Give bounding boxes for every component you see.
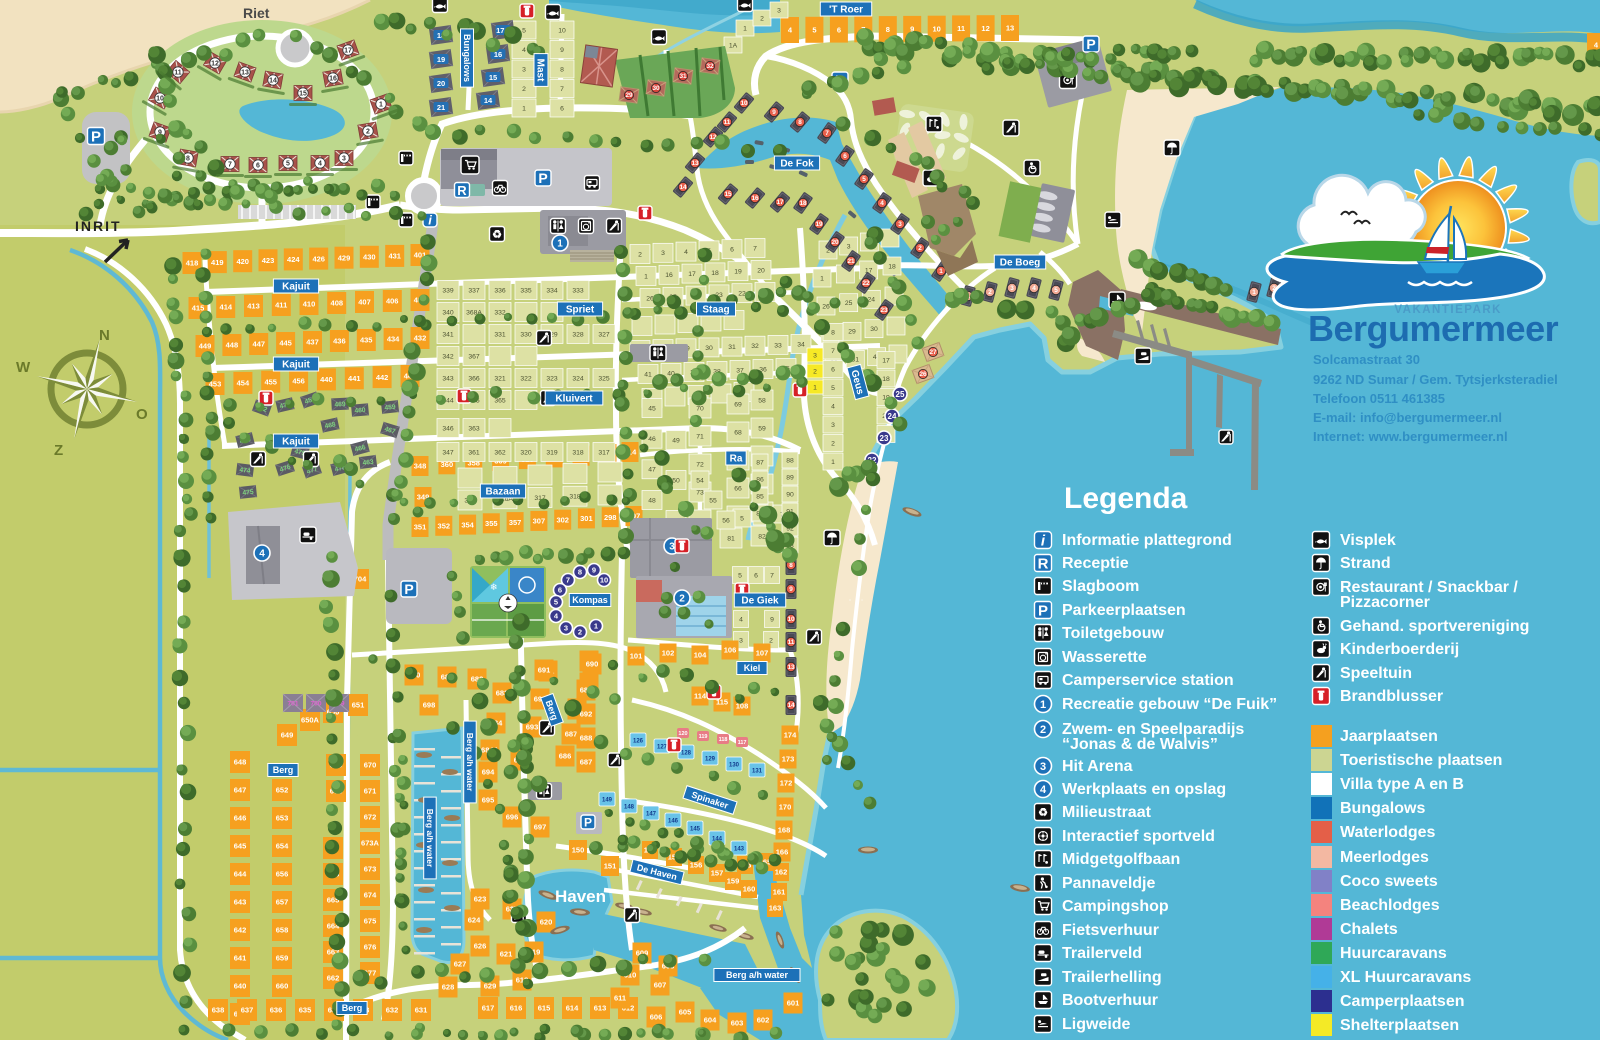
svg-text:R: R	[457, 183, 467, 198]
svg-text:1: 1	[522, 105, 526, 112]
svg-text:Berg a/h water: Berg a/h water	[726, 970, 789, 980]
svg-text:21: 21	[847, 258, 855, 265]
svg-text:660: 660	[276, 982, 289, 991]
svg-text:613: 613	[594, 1004, 607, 1013]
svg-text:317: 317	[598, 449, 610, 456]
svg-text:118: 118	[719, 737, 728, 743]
svg-text:128: 128	[681, 750, 692, 756]
svg-text:7: 7	[770, 572, 774, 579]
svg-text:1: 1	[1252, 289, 1256, 296]
svg-text:Beachlodges: Beachlodges	[1340, 897, 1440, 914]
svg-text:5: 5	[554, 598, 558, 607]
svg-text:4: 4	[880, 200, 884, 207]
svg-text:602: 602	[757, 1016, 770, 1025]
svg-text:27: 27	[929, 349, 937, 356]
svg-text:7: 7	[825, 130, 829, 137]
svg-text:107: 107	[756, 649, 769, 658]
svg-text:413: 413	[247, 302, 260, 311]
svg-text:Ra: Ra	[730, 454, 743, 465]
svg-text:11: 11	[724, 119, 731, 126]
svg-text:342: 342	[442, 353, 454, 360]
svg-text:624: 624	[468, 916, 481, 925]
svg-text:3: 3	[777, 7, 781, 14]
svg-text:31: 31	[728, 344, 736, 351]
svg-text:66: 66	[734, 485, 742, 492]
svg-text:Bungalows: Bungalows	[462, 34, 472, 82]
svg-text:23: 23	[880, 434, 889, 443]
svg-text:629: 629	[484, 982, 497, 991]
svg-text:10: 10	[558, 27, 566, 34]
svg-text:De Giek: De Giek	[741, 596, 779, 607]
svg-text:632: 632	[386, 1006, 399, 1015]
svg-text:3: 3	[831, 422, 835, 429]
svg-text:Wasserette: Wasserette	[1062, 649, 1147, 666]
svg-text:'T Roer: 'T Roer	[829, 5, 863, 16]
svg-text:627: 627	[454, 960, 467, 969]
svg-text:2: 2	[578, 628, 582, 637]
svg-text:130: 130	[729, 762, 740, 768]
svg-text:604: 604	[704, 1016, 717, 1025]
svg-text:631: 631	[415, 1006, 428, 1015]
svg-text:161: 161	[773, 888, 786, 897]
svg-text:8: 8	[798, 119, 802, 126]
svg-text:620: 620	[540, 918, 553, 927]
svg-text:Speeltuin: Speeltuin	[1340, 665, 1412, 682]
svg-text:170: 170	[779, 803, 792, 812]
svg-text:3: 3	[522, 66, 526, 73]
svg-text:701: 701	[287, 701, 298, 708]
svg-text:366: 366	[468, 375, 480, 382]
svg-text:32: 32	[706, 63, 714, 70]
svg-text:321: 321	[494, 375, 506, 382]
svg-text:69: 69	[734, 401, 742, 408]
svg-text:Chalets: Chalets	[1340, 921, 1398, 938]
svg-text:339: 339	[442, 287, 454, 294]
svg-text:56: 56	[722, 517, 730, 524]
svg-text:13: 13	[241, 69, 249, 76]
svg-text:603: 603	[731, 1019, 744, 1028]
svg-text:687: 687	[565, 730, 578, 739]
svg-text:607: 607	[654, 981, 667, 990]
svg-text:6: 6	[730, 247, 734, 254]
svg-text:120: 120	[678, 731, 687, 737]
svg-text:3: 3	[1010, 285, 1014, 292]
svg-text:10: 10	[787, 616, 795, 623]
svg-text:23: 23	[880, 307, 888, 314]
svg-text:8: 8	[578, 568, 582, 577]
svg-text:Bergumermeer: Bergumermeer	[1308, 308, 1559, 349]
svg-text:318: 318	[569, 494, 581, 501]
svg-text:Berg: Berg	[342, 1003, 363, 1013]
svg-text:168: 168	[778, 826, 791, 835]
svg-text:30: 30	[705, 345, 713, 352]
svg-text:18: 18	[882, 376, 890, 383]
svg-text:131: 131	[752, 768, 763, 774]
svg-text:441: 441	[348, 374, 361, 383]
svg-text:46: 46	[648, 436, 656, 443]
svg-text:696: 696	[506, 813, 519, 822]
svg-text:411: 411	[275, 301, 287, 310]
svg-text:Receptie: Receptie	[1062, 555, 1129, 572]
svg-text:693: 693	[526, 723, 539, 732]
svg-text:147: 147	[646, 811, 657, 817]
svg-text:O: O	[136, 406, 148, 423]
svg-text:Huurcaravans: Huurcaravans	[1340, 945, 1447, 962]
svg-text:6: 6	[558, 586, 562, 595]
svg-text:Berg: Berg	[273, 765, 294, 775]
svg-text:414: 414	[220, 303, 233, 312]
svg-text:426: 426	[312, 254, 325, 263]
svg-text:671: 671	[364, 787, 377, 796]
svg-text:5: 5	[738, 572, 742, 579]
svg-text:Kajuit: Kajuit	[282, 437, 310, 448]
svg-text:13: 13	[1006, 24, 1014, 33]
svg-text:174: 174	[784, 731, 797, 740]
svg-text:13: 13	[787, 664, 795, 671]
svg-text:323: 323	[546, 375, 558, 382]
svg-text:5: 5	[862, 176, 866, 183]
svg-text:73: 73	[696, 489, 704, 496]
svg-text:N: N	[99, 327, 110, 344]
svg-text:331: 331	[494, 331, 506, 338]
svg-text:Staag: Staag	[702, 305, 729, 316]
svg-text:6: 6	[837, 25, 841, 34]
svg-text:45: 45	[648, 405, 656, 412]
svg-text:Pannaveldje: Pannaveldje	[1062, 875, 1155, 892]
svg-text:343: 343	[442, 375, 454, 382]
svg-text:7: 7	[560, 86, 564, 93]
svg-text:Shelterplaatsen: Shelterplaatsen	[1340, 1017, 1459, 1034]
svg-text:151: 151	[604, 862, 617, 871]
svg-text:17: 17	[776, 199, 784, 206]
svg-text:650A: 650A	[301, 716, 320, 725]
svg-text:432: 432	[414, 334, 427, 343]
svg-text:626: 626	[474, 942, 487, 951]
svg-text:614: 614	[566, 1004, 579, 1013]
svg-text:355: 355	[485, 519, 498, 528]
svg-text:336: 336	[494, 287, 506, 294]
svg-text:143: 143	[734, 846, 745, 852]
svg-text:146: 146	[668, 818, 679, 824]
svg-text:119: 119	[699, 734, 708, 740]
svg-text:Recreatie gebouw “De Fuik”: Recreatie gebouw “De Fuik”	[1062, 696, 1277, 713]
svg-text:4: 4	[831, 403, 835, 410]
svg-text:18: 18	[799, 200, 807, 207]
svg-text:12: 12	[981, 24, 989, 33]
svg-text:5: 5	[831, 385, 835, 392]
svg-text:1: 1	[557, 239, 563, 250]
svg-text:68: 68	[734, 429, 742, 436]
svg-text:637: 637	[241, 1006, 254, 1015]
svg-text:298: 298	[604, 513, 617, 522]
svg-text:1: 1	[644, 273, 648, 280]
svg-text:14: 14	[679, 184, 687, 191]
svg-text:367: 367	[468, 353, 480, 360]
svg-text:1: 1	[1040, 699, 1046, 711]
svg-text:4: 4	[684, 249, 688, 256]
svg-text:646: 646	[234, 814, 247, 823]
svg-text:641: 641	[234, 954, 247, 963]
svg-text:431: 431	[388, 252, 401, 261]
svg-text:Trailerhelling: Trailerhelling	[1062, 969, 1162, 986]
svg-text:10: 10	[933, 24, 941, 33]
svg-text:Telefoon 0511 461385: Telefoon 0511 461385	[1313, 391, 1445, 406]
svg-text:54: 54	[696, 477, 704, 484]
svg-text:163: 163	[769, 904, 782, 913]
svg-text:16: 16	[665, 272, 673, 279]
svg-text:334: 334	[546, 287, 558, 294]
svg-text:Legenda: Legenda	[1064, 482, 1188, 515]
svg-text:1: 1	[939, 268, 943, 275]
svg-text:7: 7	[566, 576, 570, 585]
svg-text:475: 475	[242, 489, 254, 497]
svg-text:406: 406	[386, 297, 399, 306]
svg-text:20: 20	[437, 79, 445, 88]
svg-text:325: 325	[598, 375, 610, 382]
svg-text:Kinderboerderij: Kinderboerderij	[1340, 641, 1459, 658]
svg-text:49: 49	[672, 437, 680, 444]
svg-text:10: 10	[156, 95, 164, 102]
svg-text:126: 126	[633, 738, 644, 744]
svg-text:643: 643	[234, 898, 247, 907]
svg-text:6: 6	[843, 153, 847, 160]
svg-text:322: 322	[520, 375, 532, 382]
svg-text:408: 408	[331, 299, 344, 308]
svg-text:19: 19	[815, 221, 823, 228]
svg-text:361: 361	[468, 449, 480, 456]
svg-text:628: 628	[442, 983, 455, 992]
svg-text:10: 10	[600, 576, 608, 585]
svg-text:3: 3	[342, 155, 346, 162]
svg-text:89: 89	[786, 474, 794, 481]
svg-text:5: 5	[1054, 287, 1058, 294]
svg-text:15: 15	[724, 191, 732, 198]
svg-text:145: 145	[690, 826, 701, 832]
svg-text:635: 635	[299, 1006, 312, 1015]
svg-text:22: 22	[862, 280, 870, 287]
svg-text:11: 11	[957, 24, 965, 33]
svg-text:672: 672	[364, 813, 377, 822]
svg-text:90: 90	[786, 491, 794, 498]
svg-text:i: i	[428, 212, 432, 227]
svg-text:Mast: Mast	[534, 59, 545, 82]
svg-text:Toiletgebouw: Toiletgebouw	[1062, 625, 1164, 642]
svg-text:623: 623	[474, 895, 487, 904]
svg-text:Villa type A en B: Villa type A en B	[1340, 776, 1464, 793]
svg-text:418: 418	[186, 259, 199, 268]
svg-text:9: 9	[560, 47, 564, 54]
svg-text:71: 71	[696, 433, 704, 440]
svg-text:Midgetgolfbaan: Midgetgolfbaan	[1062, 851, 1180, 868]
svg-text:638: 638	[212, 1006, 225, 1015]
svg-text:W: W	[16, 359, 31, 376]
svg-text:424: 424	[287, 255, 300, 264]
svg-text:606: 606	[650, 1013, 663, 1022]
svg-text:456: 456	[292, 376, 305, 385]
svg-text:436: 436	[333, 337, 346, 346]
svg-text:30: 30	[870, 326, 878, 333]
svg-text:2: 2	[918, 245, 922, 252]
svg-text:5: 5	[812, 26, 816, 35]
svg-text:14: 14	[484, 96, 493, 105]
svg-text:Fietsverhuur: Fietsverhuur	[1062, 922, 1159, 939]
svg-text:148: 148	[624, 804, 635, 810]
svg-text:156: 156	[690, 861, 703, 870]
svg-text:8: 8	[886, 25, 890, 34]
svg-text:9: 9	[789, 586, 793, 593]
svg-text:302: 302	[556, 515, 569, 524]
svg-text:691: 691	[538, 666, 551, 675]
svg-text:4: 4	[739, 616, 743, 623]
svg-text:21: 21	[437, 103, 445, 112]
svg-text:31: 31	[679, 73, 687, 80]
svg-text:25: 25	[845, 300, 853, 307]
svg-text:26: 26	[822, 303, 830, 310]
svg-text:675: 675	[364, 917, 377, 926]
svg-text:82: 82	[758, 533, 766, 540]
svg-text:654: 654	[276, 842, 289, 851]
svg-text:307: 307	[533, 517, 546, 526]
svg-text:318: 318	[572, 449, 584, 456]
svg-text:440: 440	[320, 375, 333, 384]
svg-text:12: 12	[211, 60, 219, 67]
svg-text:320: 320	[520, 449, 532, 456]
svg-text:Kajuit: Kajuit	[282, 360, 310, 371]
svg-text:19: 19	[437, 55, 445, 64]
svg-text:645: 645	[234, 842, 247, 851]
svg-text:129: 129	[705, 756, 716, 762]
svg-text:2: 2	[522, 86, 526, 93]
svg-text:652: 652	[276, 786, 289, 795]
svg-text:423: 423	[262, 256, 275, 265]
svg-text:658: 658	[276, 926, 289, 935]
svg-text:686: 686	[559, 752, 572, 761]
svg-text:3: 3	[1040, 761, 1046, 773]
svg-text:616: 616	[510, 1004, 523, 1013]
svg-text:Internet: www.bergumermeer.nl: Internet: www.bergumermeer.nl	[1313, 429, 1508, 444]
svg-text:34: 34	[797, 341, 805, 348]
svg-text:18: 18	[711, 270, 719, 277]
svg-text:601: 601	[787, 999, 800, 1008]
svg-text:3: 3	[661, 250, 665, 257]
svg-text:2: 2	[813, 368, 817, 375]
svg-text:332: 332	[494, 309, 506, 316]
svg-text:Kluivert: Kluivert	[555, 394, 593, 405]
svg-text:2: 2	[638, 251, 642, 258]
svg-text:621: 621	[500, 950, 513, 959]
svg-text:687: 687	[580, 758, 593, 767]
svg-text:460: 460	[354, 407, 366, 415]
svg-text:1: 1	[379, 101, 383, 108]
svg-text:117: 117	[738, 740, 747, 746]
svg-text:Riet: Riet	[243, 5, 270, 21]
svg-text:328: 328	[572, 331, 584, 338]
svg-text:Visplek: Visplek	[1340, 532, 1396, 549]
svg-text:420: 420	[236, 257, 249, 266]
svg-text:644: 644	[234, 870, 247, 879]
svg-text:3: 3	[847, 243, 851, 250]
svg-text:162: 162	[775, 868, 788, 877]
svg-text:♻: ♻	[1038, 807, 1048, 819]
svg-text:149: 149	[602, 797, 613, 803]
svg-text:448: 448	[226, 341, 239, 350]
svg-text:365: 365	[494, 397, 506, 404]
svg-text:“Jonas & de Walvis”: “Jonas & de Walvis”	[1062, 736, 1218, 753]
svg-text:Trailerveld: Trailerveld	[1062, 945, 1142, 962]
svg-text:Pizzacorner: Pizzacorner	[1340, 594, 1430, 611]
svg-text:17: 17	[344, 47, 352, 54]
svg-text:Berg a/h water: Berg a/h water	[465, 733, 475, 792]
svg-text:7: 7	[753, 245, 757, 252]
svg-text:9262 ND Sumar / Gem. Tytsjerks: 9262 ND Sumar / Gem. Tytsjerksteradiel	[1313, 372, 1558, 387]
svg-text:Waterlodges: Waterlodges	[1340, 824, 1436, 841]
svg-text:410: 410	[303, 300, 316, 309]
svg-text:662: 662	[327, 974, 340, 983]
svg-text:363: 363	[468, 425, 480, 432]
svg-text:9: 9	[772, 109, 776, 116]
svg-text:4: 4	[318, 160, 322, 167]
svg-text:18: 18	[888, 263, 896, 270]
svg-text:Camperservice station: Camperservice station	[1062, 672, 1234, 689]
svg-text:2: 2	[760, 15, 764, 22]
svg-text:8: 8	[831, 329, 835, 336]
svg-text:2: 2	[769, 637, 773, 644]
svg-text:340: 340	[442, 309, 454, 316]
svg-text:11: 11	[788, 639, 795, 646]
svg-text:435: 435	[360, 336, 373, 345]
svg-text:De Fok: De Fok	[780, 159, 814, 170]
svg-text:Meerlodges: Meerlodges	[1340, 849, 1429, 866]
svg-text:9: 9	[592, 566, 596, 575]
svg-text:Parkeerplaatsen: Parkeerplaatsen	[1062, 602, 1186, 619]
svg-text:81: 81	[727, 535, 735, 542]
svg-text:698: 698	[423, 701, 436, 710]
svg-text:32: 32	[751, 343, 759, 350]
svg-text:29: 29	[848, 329, 856, 336]
svg-text:150: 150	[572, 846, 585, 855]
svg-text:Strand: Strand	[1340, 555, 1391, 572]
svg-text:Gehand. sportvereniging: Gehand. sportvereniging	[1340, 618, 1529, 635]
svg-text:611: 611	[614, 994, 626, 1003]
svg-text:XL Huurcaravans: XL Huurcaravans	[1340, 969, 1471, 986]
svg-text:Campingshop: Campingshop	[1062, 898, 1169, 915]
svg-text:419: 419	[211, 258, 224, 267]
svg-text:352: 352	[438, 522, 451, 531]
svg-text:P: P	[91, 128, 101, 145]
svg-text:157: 157	[711, 869, 724, 878]
svg-text:14: 14	[269, 77, 277, 84]
svg-text:4: 4	[1032, 285, 1036, 292]
svg-text:327: 327	[598, 331, 610, 338]
svg-text:6: 6	[560, 105, 564, 112]
svg-text:16: 16	[329, 75, 337, 82]
svg-text:690: 690	[586, 660, 599, 669]
svg-text:640: 640	[234, 982, 247, 991]
svg-text:Jaarplaatsen: Jaarplaatsen	[1340, 728, 1438, 745]
svg-text:Informatie plattegrond: Informatie plattegrond	[1062, 532, 1232, 549]
svg-text:59: 59	[758, 425, 766, 432]
svg-text:102: 102	[662, 649, 675, 658]
svg-text:469: 469	[334, 401, 346, 409]
svg-text:695: 695	[482, 796, 495, 805]
svg-text:7: 7	[228, 161, 232, 168]
svg-text:Spriet: Spriet	[566, 305, 595, 316]
svg-text:Bazaan: Bazaan	[485, 487, 520, 498]
svg-text:16: 16	[751, 195, 759, 202]
svg-text:2: 2	[1040, 724, 1046, 736]
svg-text:7: 7	[831, 348, 835, 355]
svg-text:694: 694	[482, 768, 495, 777]
